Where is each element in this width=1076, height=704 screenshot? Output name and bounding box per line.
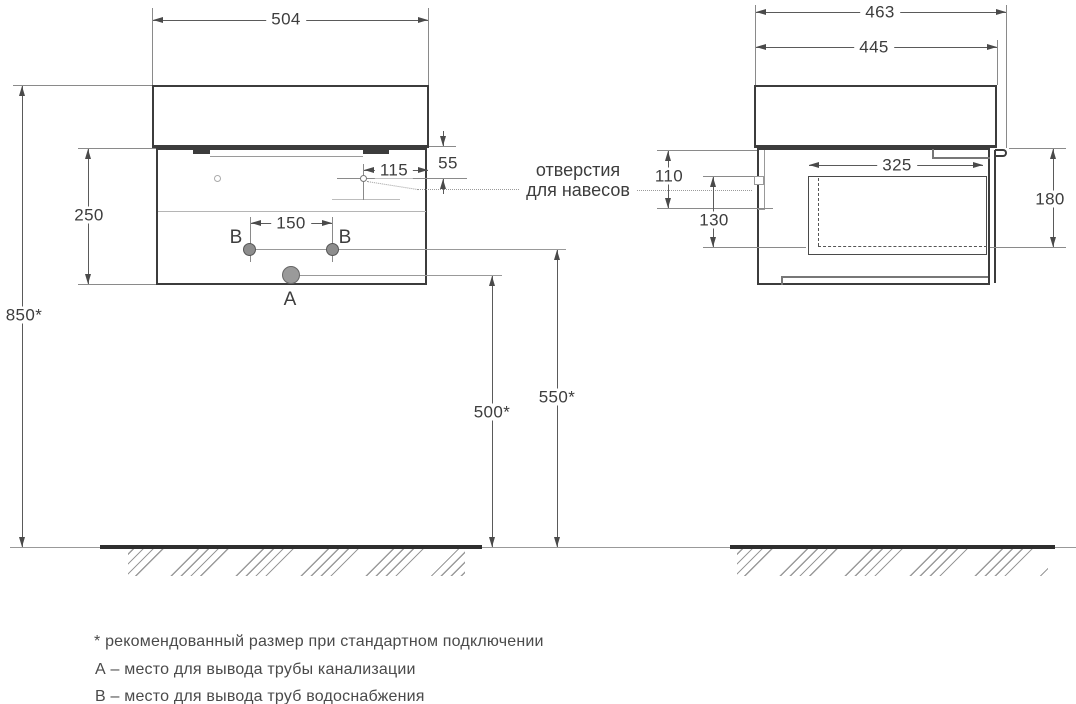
side-drawer-dashed-v xyxy=(818,178,819,246)
side-kick-recess-h xyxy=(781,276,988,278)
dim-180-ext-top xyxy=(1009,148,1066,149)
drain-level-line xyxy=(291,275,502,276)
dim-504-arrow-right xyxy=(418,17,428,23)
side-drawer-inner-box xyxy=(808,176,987,255)
dim-110-arrow-top xyxy=(665,151,671,161)
dim-55-arrow-up xyxy=(440,179,446,189)
water-level-line xyxy=(250,249,566,250)
floor-line-left xyxy=(100,545,482,549)
front-small-hole xyxy=(214,175,221,182)
dim-850-arrow-top xyxy=(19,86,25,96)
hanger-callout-text: отверстия для навесов xyxy=(522,160,634,200)
dim-250-arrow-bottom xyxy=(85,274,91,284)
dim-445-label: 445 xyxy=(854,39,894,56)
floor-hatch-right xyxy=(737,549,1048,576)
side-kick-recess-v xyxy=(781,276,783,285)
dim-180-arrow-bottom xyxy=(1050,237,1056,247)
drain-point-label: A xyxy=(284,289,297,311)
dim-180-ext-bottom xyxy=(990,247,1066,248)
dim-550-arrow-bottom xyxy=(554,537,560,547)
side-handle-notch-v xyxy=(932,149,934,158)
dim-550-label: 550* xyxy=(534,389,581,406)
dim-250-arrow-top xyxy=(85,149,91,159)
dim-130-label: 130 xyxy=(694,212,734,229)
dim-850-ext-top xyxy=(13,85,152,86)
side-hanger-bracket xyxy=(754,176,764,185)
dim-180-label: 180 xyxy=(1030,191,1070,208)
note-recommended: * рекомендованный размер при стандартном… xyxy=(94,633,544,651)
dim-504-label: 504 xyxy=(266,11,306,28)
side-countertop xyxy=(754,85,997,148)
side-drawer-front-line xyxy=(994,150,996,283)
front-drawer-divider-line xyxy=(158,211,426,212)
dim-445-ext-right xyxy=(997,40,998,85)
dim-504-arrow-left xyxy=(153,17,163,23)
dim-110-ext-top xyxy=(657,150,757,151)
dim-325-arrow-right xyxy=(973,162,983,168)
hanger-callout-line1: отверстия xyxy=(526,160,630,180)
dim-500-arrow-bottom xyxy=(489,537,495,547)
dim-130-ext-bottom xyxy=(703,247,806,248)
dim-110-ext-bottom xyxy=(657,208,773,209)
side-back-panel-line xyxy=(764,150,765,209)
dim-115-label: 115 xyxy=(375,162,413,179)
dim-150-arrow-right xyxy=(322,220,332,226)
note-a: А – место для вывода трубы канализации xyxy=(95,661,416,679)
dim-504-ext-right xyxy=(428,8,429,85)
dim-115-arrow-left xyxy=(364,167,374,173)
front-handle-groove-line xyxy=(210,156,363,157)
dim-130-arrow-bottom xyxy=(710,237,716,247)
callout-dotted-left xyxy=(417,189,519,190)
side-drawer-lip xyxy=(995,149,1007,157)
dim-500-label: 500* xyxy=(469,404,516,421)
dim-325-arrow-left xyxy=(809,162,819,168)
dim-325-label: 325 xyxy=(877,157,917,174)
technical-drawing: 504 850* 250 115 xyxy=(0,0,1076,704)
callout-dotted-right xyxy=(637,190,752,191)
side-back-panel-tick xyxy=(758,209,765,210)
dim-445-arrow-left xyxy=(756,44,766,50)
dim-150-label: 150 xyxy=(271,215,311,232)
dim-463-arrow-left xyxy=(756,9,766,15)
side-handle-notch-h xyxy=(932,157,990,159)
dim-250-ext-bottom xyxy=(78,284,156,285)
water-point-right xyxy=(326,243,339,256)
hanger-callout-line2: для навесов xyxy=(526,180,630,200)
dim-55-arrow-down xyxy=(440,136,446,146)
water-point-right-label: B xyxy=(339,227,352,249)
dim-850-label: 850* xyxy=(1,307,48,324)
floor-hatch-left xyxy=(128,549,465,576)
dim-445-arrow-right xyxy=(987,44,997,50)
dim-463-ext-right xyxy=(1006,5,1007,148)
dim-500-arrow-top xyxy=(489,276,495,286)
dim-850-arrow-bottom xyxy=(19,537,25,547)
dim-115-arrow-right xyxy=(418,167,428,173)
dim-130-arrow-top xyxy=(710,177,716,187)
dim-463-arrow-right xyxy=(996,9,1006,15)
front-drawer-inner-line xyxy=(332,199,400,200)
dim-550-arrow-top xyxy=(554,250,560,260)
dim-110-label: 110 xyxy=(650,168,688,185)
drain-point-circle xyxy=(282,266,300,284)
dim-110-arrow-bottom xyxy=(665,198,671,208)
side-drawer-dashed-h xyxy=(818,246,987,247)
dim-250-label: 250 xyxy=(69,207,109,224)
dim-55-label: 55 xyxy=(433,155,463,172)
dim-150-arrow-left xyxy=(251,220,261,226)
front-handle-left-tab xyxy=(193,150,210,154)
floor-line-right xyxy=(730,545,1055,549)
front-handle-right-tab xyxy=(363,150,389,154)
dim-463-label: 463 xyxy=(860,4,900,21)
dim-180-arrow-top xyxy=(1050,149,1056,159)
water-point-left xyxy=(243,243,256,256)
front-countertop xyxy=(152,85,429,148)
dim-55-ext-top xyxy=(429,146,456,147)
note-b: В – место для вывода труб водоснабжения xyxy=(95,688,425,704)
water-point-left-label: B xyxy=(230,227,243,249)
